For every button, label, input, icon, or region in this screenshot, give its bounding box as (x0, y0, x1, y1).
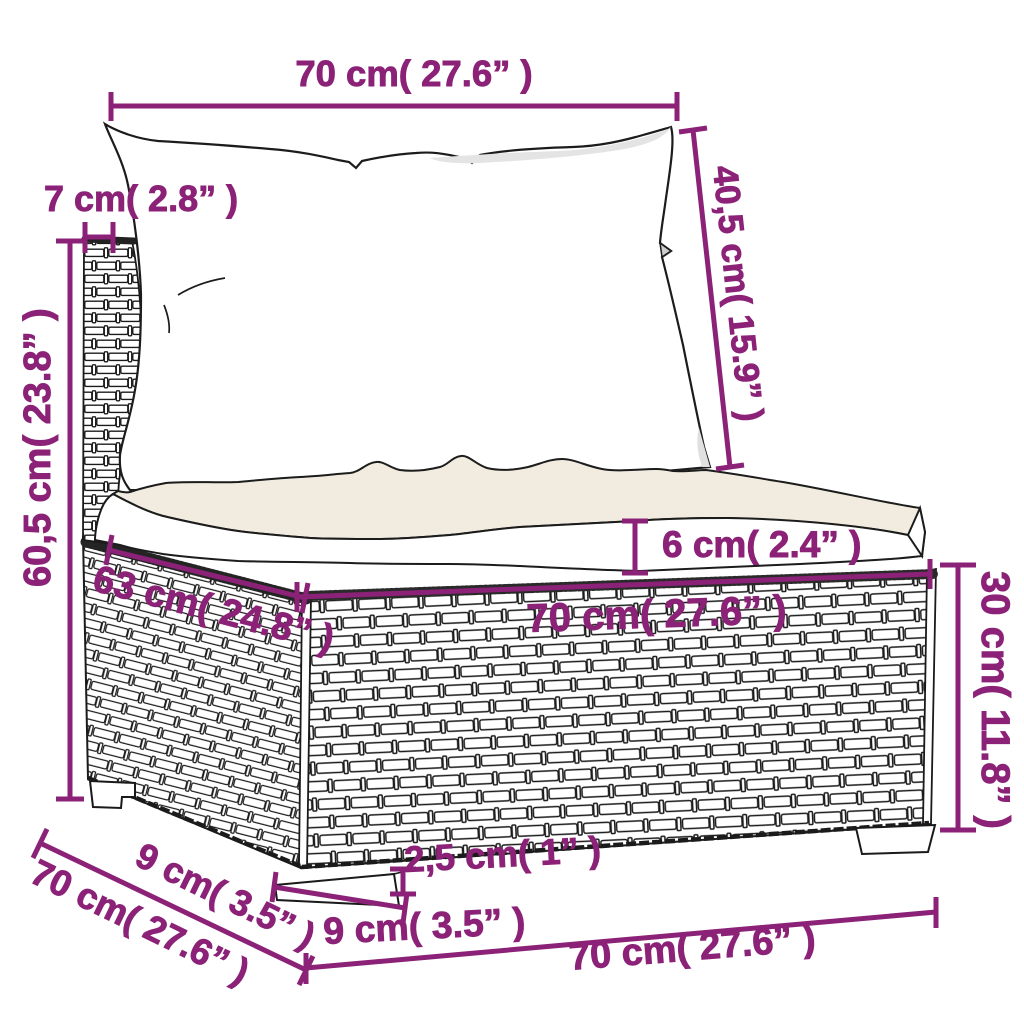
svg-text:30 cm( 11.8” ): 30 cm( 11.8” ) (973, 571, 1017, 829)
svg-text:70 cm( 27.6” ): 70 cm( 27.6” ) (526, 588, 788, 641)
svg-text:70 cm( 27.6” ): 70 cm( 27.6” ) (295, 53, 532, 94)
svg-text:60,5 cm( 23.8” ): 60,5 cm( 23.8” ) (17, 308, 59, 587)
svg-text:7 cm( 2.8” ): 7 cm( 2.8” ) (44, 178, 238, 219)
svg-text:6 cm( 2.4” ): 6 cm( 2.4” ) (662, 524, 861, 565)
